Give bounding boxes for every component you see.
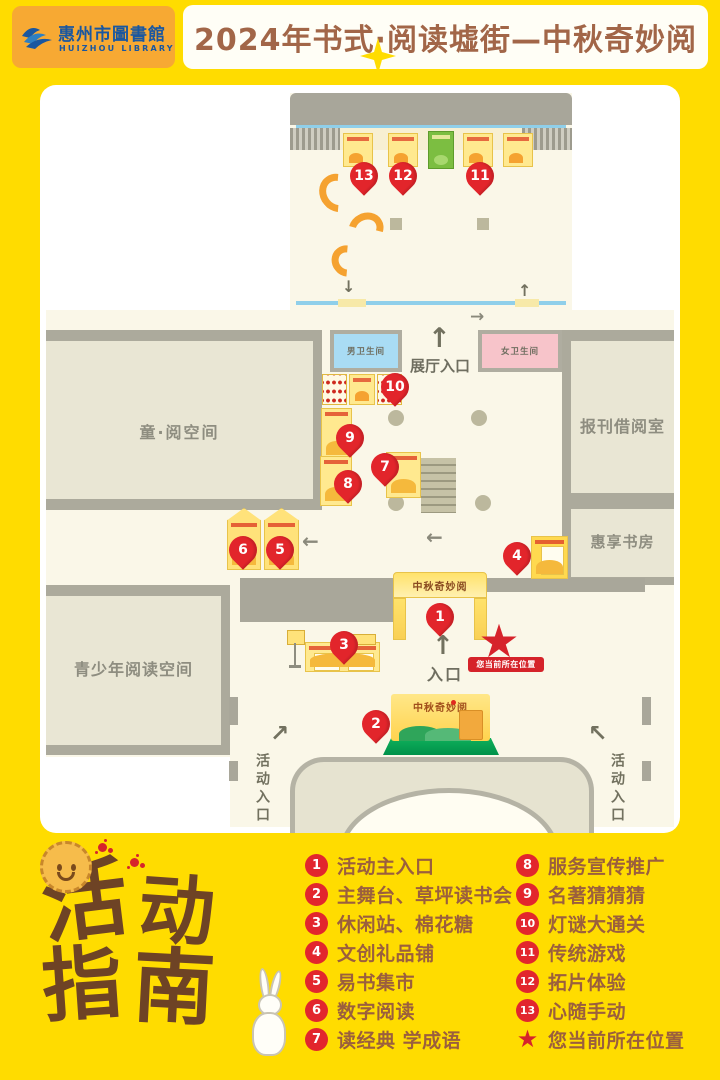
- current-location-label: 您当前所在位置: [468, 657, 544, 672]
- arrow-up-icon: ↑: [432, 633, 454, 659]
- pin-number: 11: [466, 162, 494, 190]
- booth-gift-shop: [531, 536, 568, 579]
- library-logo-icon: [20, 22, 56, 50]
- lantern-dot: [451, 700, 456, 705]
- map-pin-9: 9: [330, 418, 370, 458]
- pin-number: 9: [336, 424, 364, 452]
- legend-label: 休闲站、棉花糖: [337, 910, 474, 937]
- map-pin-3: 3: [324, 625, 364, 665]
- legend-item: 9 名著猜猜猜: [516, 882, 646, 906]
- booth-panel: [541, 546, 564, 575]
- guide-title-char: 南: [131, 948, 217, 1030]
- activity-entrance-right-label: 活动入口: [607, 753, 627, 833]
- legend-label: 易书集市: [337, 968, 415, 995]
- legend-item-current-location: ★ 您当前所在位置: [516, 1027, 685, 1051]
- rabbit-body: [252, 1012, 286, 1056]
- legend-number-badge: 8: [516, 854, 539, 877]
- library-name-en: HUIZHOU LIBRARY: [59, 44, 175, 53]
- pin-number: 8: [334, 470, 362, 498]
- legend-item: 10 灯谜大通关: [516, 911, 646, 935]
- map-pin-13: 13: [344, 156, 384, 196]
- arrow-left-icon: ←: [302, 531, 319, 551]
- top-room-roof: [290, 93, 572, 125]
- room-youth-reading: 青少年阅读空间: [46, 585, 230, 755]
- arrow-up-icon: ↑: [518, 283, 531, 299]
- arrow-up-right-icon: ↗: [270, 723, 289, 746]
- legend-item: 6 数字阅读: [305, 998, 415, 1022]
- sign-stand: [287, 630, 307, 670]
- lawn-path: [339, 788, 559, 833]
- guide-title-char: 指: [39, 944, 124, 1025]
- map-pin-6: 6: [223, 530, 263, 570]
- activity-poster-green: [428, 131, 454, 169]
- legend-item: 1 活动主入口: [305, 853, 435, 877]
- legend-item: 12 拓片体验: [516, 969, 626, 993]
- map-pin-7: 7: [365, 447, 405, 487]
- legend-label: 文创礼品铺: [337, 939, 435, 966]
- pin-number: 6: [229, 536, 257, 564]
- mooncake-eye: [71, 864, 76, 871]
- room-label: 报刊借阅室: [571, 413, 674, 437]
- room-study: 惠享书房: [562, 502, 674, 585]
- wall-hatched-left: [290, 128, 340, 150]
- legend-number-badge: 10: [516, 912, 539, 935]
- legend-label: 服务宣传推广: [548, 852, 665, 879]
- lawn-area: [290, 757, 594, 833]
- sign-pole: [294, 643, 296, 665]
- star-icon: ★: [516, 1027, 539, 1051]
- activity-entrance-left-label: 活动入口: [252, 753, 272, 833]
- arrow-down-icon: ↓: [342, 279, 355, 295]
- room-label: 惠享书房: [571, 531, 674, 552]
- legend-number-badge: 1: [305, 854, 328, 877]
- pillar: [477, 218, 489, 230]
- mens-restroom: 男卫生间: [330, 330, 402, 372]
- legend-label: 拓片体验: [548, 968, 626, 995]
- wall: [483, 578, 645, 592]
- map-pin-12: 12: [383, 156, 423, 196]
- pin-number: 12: [389, 162, 417, 190]
- activity-poster: [503, 133, 533, 167]
- arrow-up-icon: ↑: [428, 325, 451, 352]
- top-room: ↓ ↑: [290, 93, 572, 310]
- arch-leg: [393, 598, 406, 640]
- legend-item: 2 主舞台、草坪读书会: [305, 882, 513, 906]
- rabbit-icon: [240, 968, 296, 1058]
- pin-number: 10: [381, 373, 409, 401]
- map-pin-5: 5: [260, 530, 300, 570]
- room-label: 童·阅空间: [46, 419, 313, 443]
- legend-label: 读经典 学成语: [337, 1026, 461, 1053]
- legend-item: 8 服务宣传推广: [516, 853, 665, 877]
- wall-stub: [642, 761, 651, 781]
- pillar: [390, 218, 402, 230]
- legend-item: 7 读经典 学成语: [305, 1027, 461, 1051]
- pin-number: 2: [362, 710, 390, 738]
- legend-item: 13 心随手动: [516, 998, 626, 1022]
- legend-number-badge: 5: [305, 970, 328, 993]
- legend-label: 名著猜猜猜: [548, 881, 646, 908]
- main-stage-backdrop: 中秋奇妙阅: [391, 694, 490, 741]
- legend-label: 数字阅读: [337, 997, 415, 1024]
- mens-restroom-label: 男卫生间: [347, 345, 385, 357]
- pillar: [471, 410, 487, 426]
- legend-item: 5 易书集市: [305, 969, 415, 993]
- mooncake-eye: [57, 864, 62, 871]
- mooncake-smile: [57, 872, 75, 881]
- guide-title-char: 动: [136, 872, 217, 949]
- map-pin-8: 8: [328, 464, 368, 504]
- legend-number-badge: 4: [305, 941, 328, 964]
- map-pin-2: 2: [356, 704, 396, 744]
- legend-number-badge: 3: [305, 912, 328, 935]
- map-empty-area: [46, 757, 230, 827]
- exhibition-entrance-label: 展厅入口: [396, 355, 484, 376]
- map-pin-4: 4: [497, 536, 537, 576]
- floor-map: ↓ ↑ → 童·阅空间 男卫生间 女卫生间 ↑ 展厅入口 报刊借阅室 惠享书房 …: [40, 85, 680, 833]
- legend-item: 3 休闲站、棉花糖: [305, 911, 474, 935]
- pin-number: 3: [330, 631, 358, 659]
- legend-label: 您当前所在位置: [548, 1026, 685, 1053]
- legend-number-badge: 6: [305, 999, 328, 1022]
- legend-number-badge: 11: [516, 941, 539, 964]
- mooncake-icon: [40, 841, 92, 893]
- booth-poster: [349, 374, 375, 405]
- wall-stub: [229, 761, 238, 781]
- legend-number-badge: 9: [516, 883, 539, 906]
- library-name-cn: 惠州市圖書館: [58, 20, 166, 45]
- legend-number-badge: 12: [516, 970, 539, 993]
- map-pin-11: 11: [460, 156, 500, 196]
- library-logo-box: 惠州市圖書館 HUIZHOU LIBRARY: [12, 6, 175, 68]
- womens-restroom: 女卫生间: [478, 330, 562, 372]
- womens-restroom-label: 女卫生间: [501, 345, 539, 357]
- legend-label: 主舞台、草坪读书会: [337, 881, 513, 908]
- map-pin-10: 10: [375, 367, 415, 407]
- door-opening: [515, 299, 539, 307]
- map-pin-1: 1: [420, 597, 460, 637]
- room-label: 青少年阅读空间: [46, 656, 221, 680]
- wall: [240, 578, 394, 622]
- entrance-arch: 中秋奇妙阅: [393, 572, 487, 598]
- legend-item: 4 文创礼品铺: [305, 940, 435, 964]
- sign-base: [289, 665, 301, 668]
- arrow-up-left-icon: ↖: [588, 723, 607, 746]
- event-title: 2024年书式·阅读墟街—中秋奇妙阅: [194, 15, 697, 59]
- pin-number: 1: [426, 603, 454, 631]
- legend-number-badge: 7: [305, 1028, 328, 1051]
- arrow-right-icon: →: [470, 309, 484, 326]
- arrow-left-icon: ←: [426, 527, 443, 547]
- room-children-reading: 童·阅空间: [46, 330, 322, 510]
- wall-stub: [642, 697, 651, 725]
- entrance-label: 入口: [419, 661, 471, 685]
- pin-number: 7: [371, 453, 399, 481]
- legend-number-badge: 2: [305, 883, 328, 906]
- staircase: [421, 458, 456, 513]
- legend-number-badge: 13: [516, 999, 539, 1022]
- legend-label: 灯谜大通关: [548, 910, 646, 937]
- legend-label: 活动主入口: [337, 852, 435, 879]
- current-location-text: 您当前所在位置: [476, 659, 536, 670]
- legend-label: 传统游戏: [548, 939, 626, 966]
- pin-number: 4: [503, 542, 531, 570]
- pin-number: 13: [350, 162, 378, 190]
- lantern-panel: [322, 374, 347, 405]
- room-newspaper-reading: 报刊借阅室: [562, 330, 674, 502]
- event-title-banner: 2024年书式·阅读墟街—中秋奇妙阅: [183, 5, 708, 69]
- sign-flag: [287, 630, 305, 645]
- arch-banner-text: 中秋奇妙阅: [413, 578, 468, 593]
- legend-label: 心随手动: [548, 997, 626, 1024]
- stage-book-prop: [459, 710, 483, 740]
- pillar: [388, 410, 404, 426]
- legend-item: 11 传统游戏: [516, 940, 626, 964]
- pin-number: 5: [266, 536, 294, 564]
- pillar: [475, 495, 491, 511]
- wall-stub: [229, 697, 238, 725]
- door-opening: [338, 299, 366, 307]
